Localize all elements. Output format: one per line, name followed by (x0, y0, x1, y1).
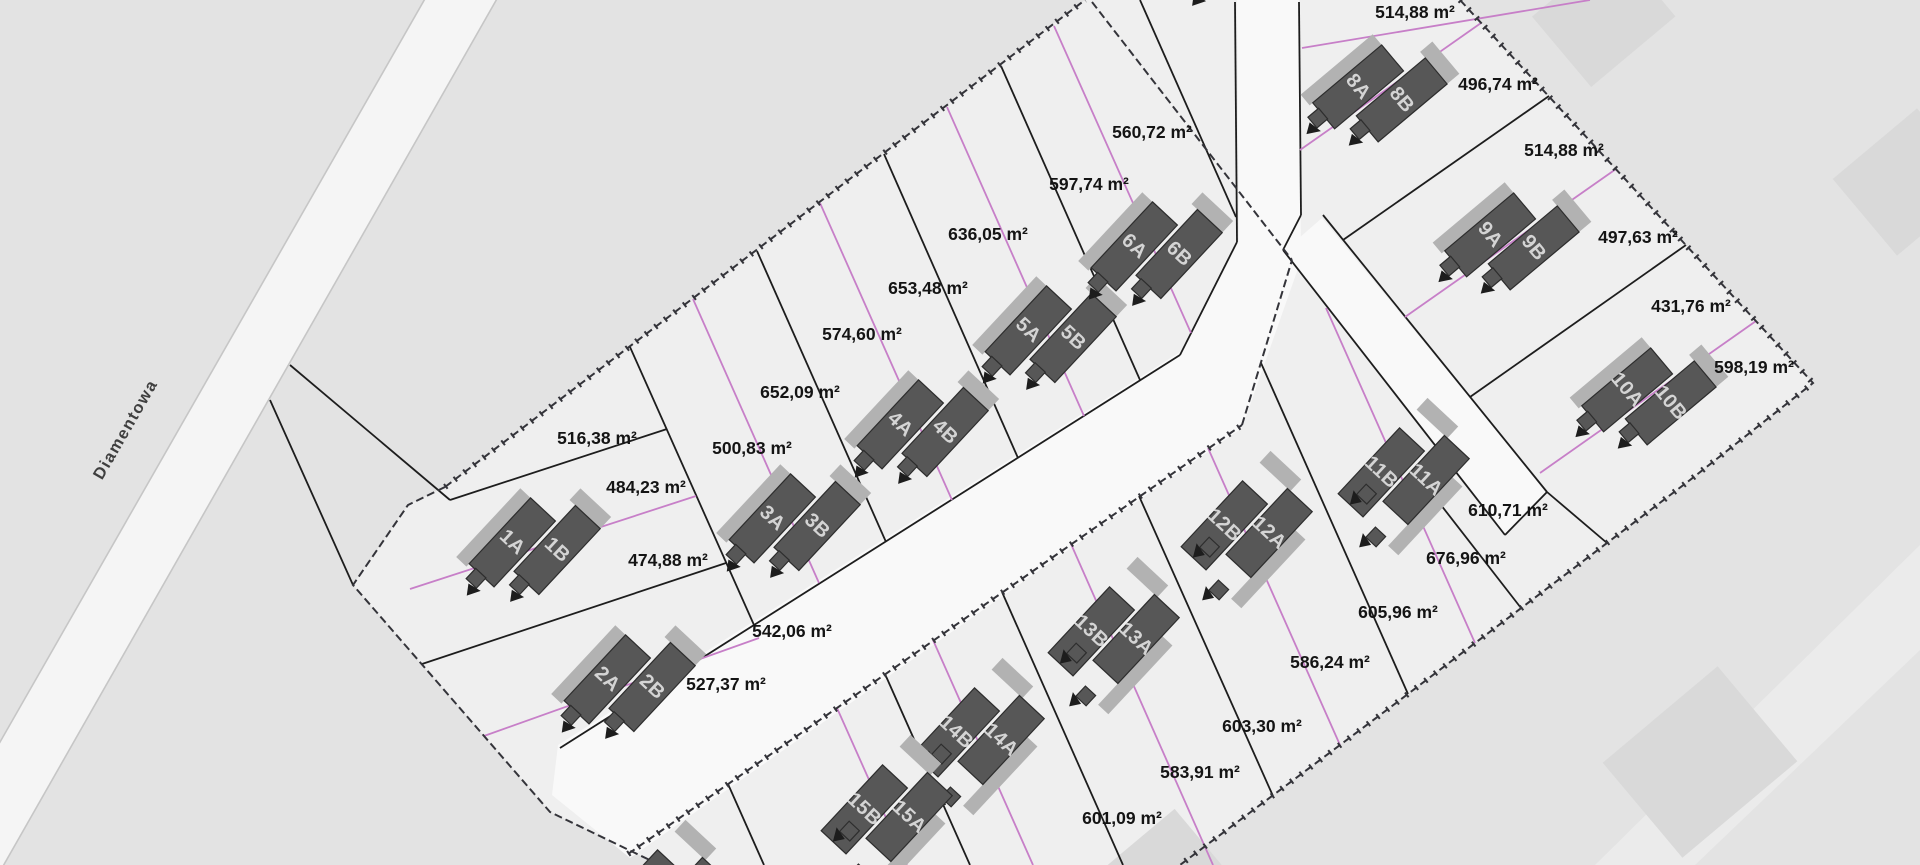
area-label-3: 527,37 m² (686, 674, 766, 694)
area-label-2: 474,88 m² (628, 550, 708, 570)
area-label-5: 542,06 m² (752, 621, 832, 641)
area-label-11: 560,72 m² (1112, 122, 1192, 142)
site-plan-map: 1A1B2A2B3A3B4A4B5A5B6A6B8A8B9A9B10A10B11… (0, 0, 1920, 865)
area-label-7: 574,60 m² (822, 324, 902, 344)
area-label-17: 598,19 m² (1714, 357, 1794, 377)
area-label-21: 586,24 m² (1290, 652, 1370, 672)
area-label-15: 497,63 m² (1598, 227, 1678, 247)
area-label-8: 653,48 m² (888, 278, 968, 298)
area-label-6: 652,09 m² (760, 382, 840, 402)
area-label-1: 484,23 m² (606, 477, 686, 497)
area-label-16: 431,76 m² (1651, 296, 1731, 316)
area-label-13: 496,74 m² (1458, 74, 1538, 94)
area-label-23: 583,91 m² (1160, 762, 1240, 782)
area-label-9: 636,05 m² (948, 224, 1028, 244)
area-label-22: 603,30 m² (1222, 716, 1302, 736)
area-label-14: 514,88 m² (1524, 140, 1604, 160)
area-label-4: 500,83 m² (712, 438, 792, 458)
area-label-10: 597,74 m² (1049, 174, 1129, 194)
area-label-18: 610,71 m² (1468, 500, 1548, 520)
area-label-20: 605,96 m² (1358, 602, 1438, 622)
area-label-19: 676,96 m² (1426, 548, 1506, 568)
area-label-12: 514,88 m² (1375, 2, 1455, 22)
area-label-0: 516,38 m² (557, 428, 637, 448)
area-label-24: 601,09 m² (1082, 808, 1162, 828)
